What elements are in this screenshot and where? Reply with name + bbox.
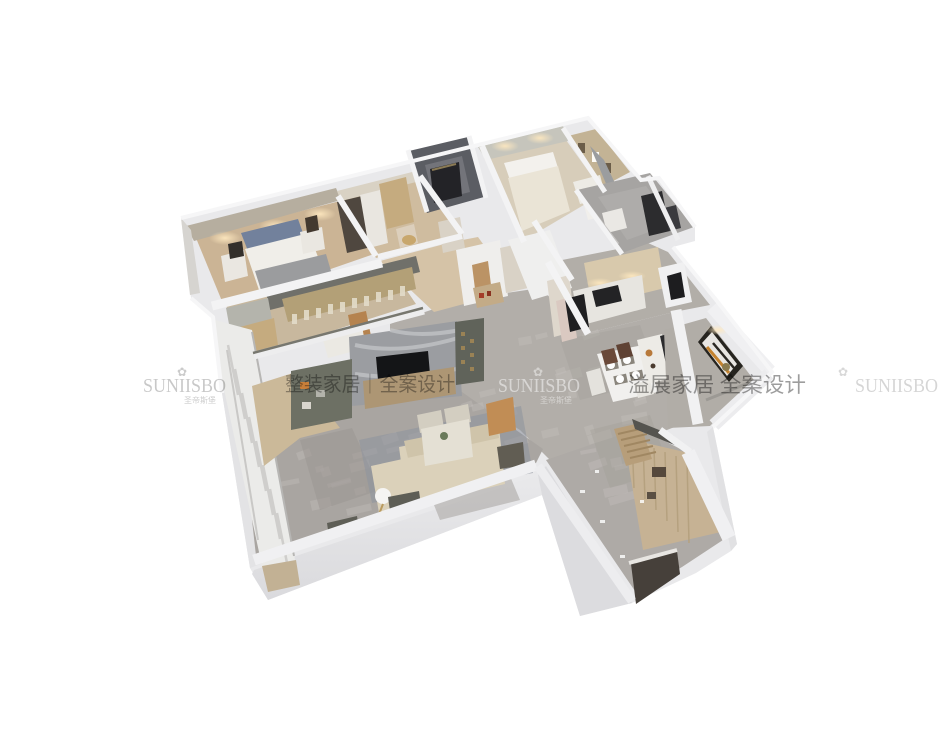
- svg-text:圣帝斯堡: 圣帝斯堡: [540, 395, 572, 405]
- svg-text:溢展家居 全案设计: 溢展家居 全案设计: [628, 373, 806, 397]
- svg-text:✿: ✿: [533, 365, 543, 379]
- svg-text:✿: ✿: [177, 365, 187, 379]
- svg-text:圣帝斯堡: 圣帝斯堡: [184, 395, 216, 405]
- svg-text:SUNIISBO: SUNIISBO: [855, 375, 938, 397]
- svg-text:整装家居｜全案设计: 整装家居｜全案设计: [285, 373, 455, 396]
- svg-text:✿: ✿: [838, 365, 848, 379]
